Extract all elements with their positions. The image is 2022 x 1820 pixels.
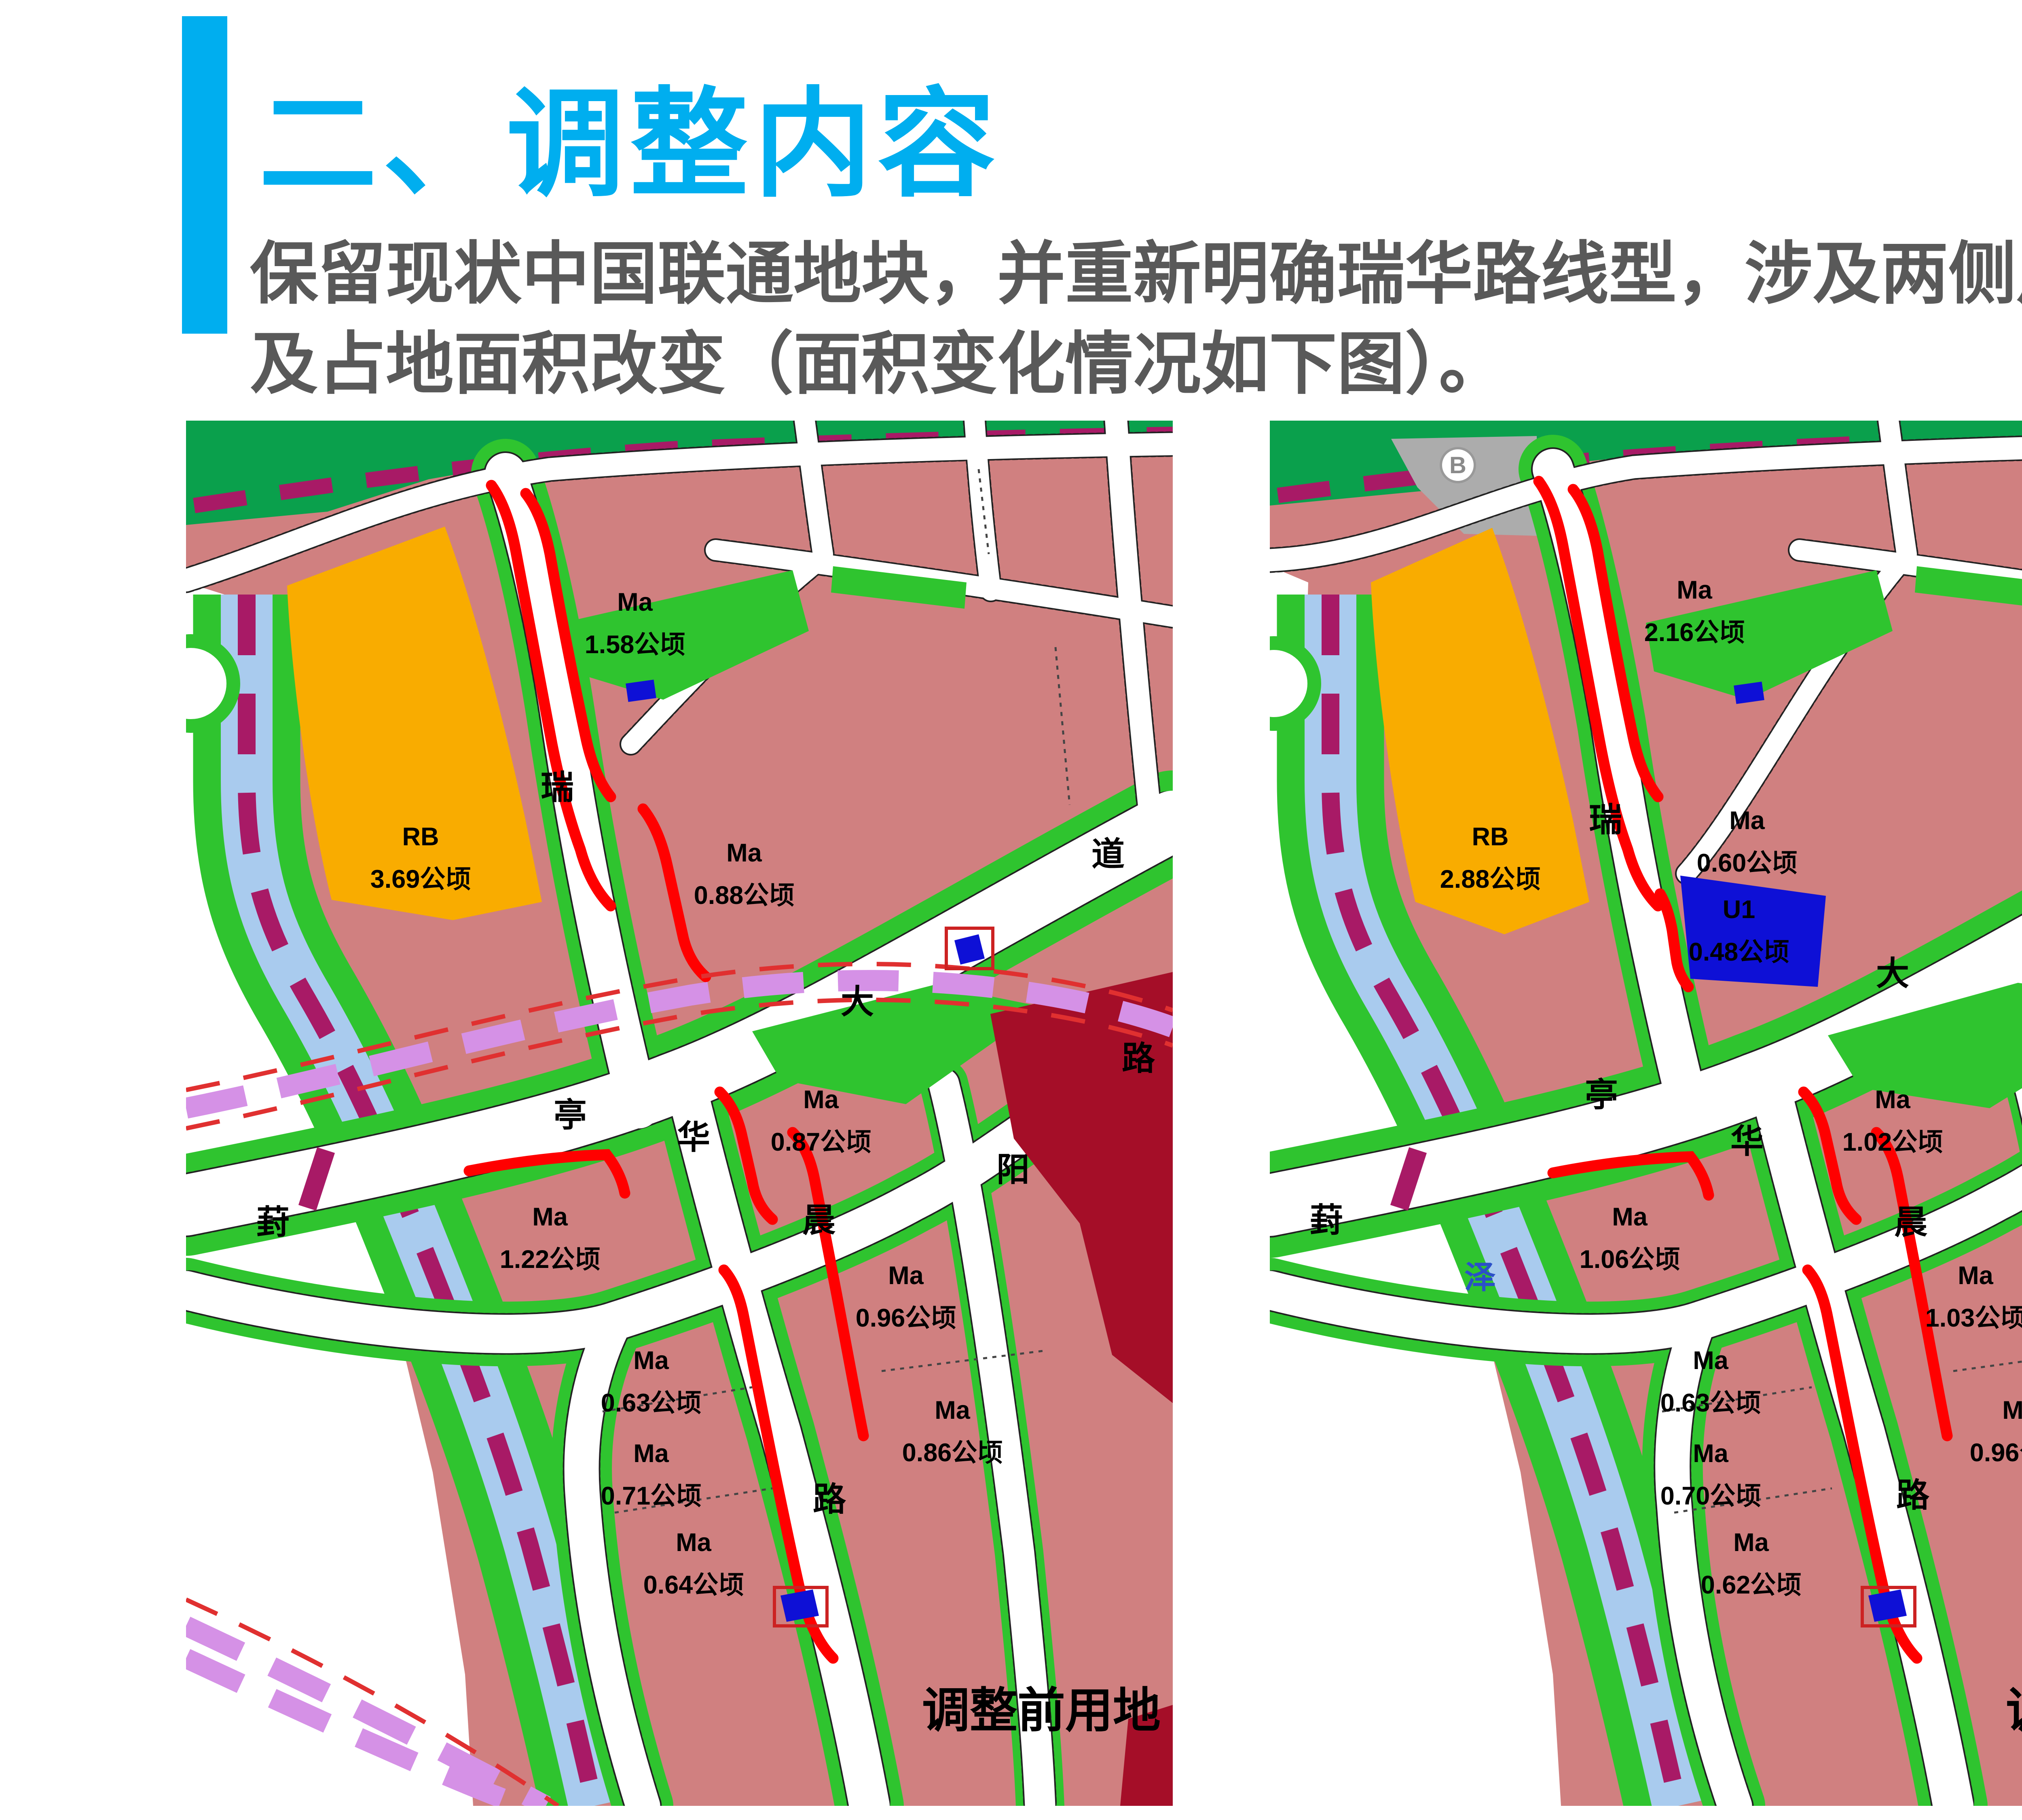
parcel-area-label: 0.63公顷 — [1660, 1389, 1761, 1417]
parcel-area-label: 0.86公顷 — [902, 1439, 1003, 1467]
map-caption: 调整后用地 — [2006, 1684, 2022, 1737]
river-name-label: 泽 — [1464, 1259, 1496, 1295]
parcel-code-label: Ma — [1693, 1346, 1728, 1375]
parcel-area-label: 2.88公顷 — [1440, 865, 1541, 893]
parcel-code-label: Ma — [803, 1086, 839, 1114]
road-name-label: 道 — [1091, 836, 1125, 873]
parcel-area-label: 1.02公顷 — [1842, 1128, 1943, 1156]
road-name-label: 华 — [677, 1119, 710, 1156]
parcel-code-label: U1 — [1723, 895, 1756, 924]
body-line-1: 保留现状中国联通地块，并重新明确瑞华路线型，涉及两侧用地形态 — [250, 229, 2022, 319]
parcel-code-label: Ma — [1612, 1203, 1648, 1231]
parcel-area-label: 1.03公顷 — [1925, 1304, 2022, 1332]
parcel-area-label: 0.64公顷 — [643, 1571, 744, 1599]
parcel-area-label: 0.87公顷 — [771, 1128, 871, 1156]
road-name-label: 瑞 — [1589, 802, 1622, 838]
road-name-label: 亭 — [1585, 1077, 1618, 1113]
parcel-code-label: Ma — [633, 1439, 669, 1468]
map-before-panel: Ma1.58公顷RB3.69公顷Ma0.88公顷Ma0.87公顷Ma1.22公顷… — [186, 421, 1173, 1806]
page-title: 二、调整内容 — [259, 49, 1001, 220]
parcel-code-label: Ma — [617, 588, 653, 616]
parcel-area-label: 0.88公顷 — [694, 881, 795, 910]
road-name-label: 华 — [1730, 1123, 1764, 1160]
map-caption: 调整前用地 — [922, 1684, 1161, 1737]
parcel-area-label: 0.71公顷 — [601, 1482, 702, 1510]
parcel-area-label: 0.62公顷 — [1701, 1571, 1802, 1599]
parcel-area-label: 0.96公顷 — [856, 1304, 956, 1332]
parcel-code-label: Ma — [2002, 1396, 2022, 1424]
map-after-panel: Ma2.16公顷RB2.88公顷Ma0.60公顷U10.48公顷Ma1.02公顷… — [1270, 421, 2022, 1806]
body-line-2: 及占地面积改变（面积变化情况如下图）。 — [250, 319, 2022, 409]
road-name-label: 路 — [813, 1481, 846, 1518]
road-name-label: 亭 — [554, 1097, 587, 1134]
road-name-label: 大 — [1876, 955, 1909, 992]
parcel-area-label: 0.60公顷 — [1697, 849, 1798, 877]
parcel-code-label: Ma — [1875, 1086, 1910, 1114]
road-name-label: 葑 — [256, 1204, 290, 1241]
road-name-label: 阳 — [996, 1151, 1030, 1188]
parcel-code-label: Ma — [935, 1396, 970, 1424]
accent-bar — [182, 16, 227, 334]
parcel-code-label: RB — [402, 823, 439, 851]
road-name-label: 晨 — [1894, 1204, 1927, 1241]
road-name-label: 路 — [1896, 1477, 1930, 1514]
parcel-code-label: Ma — [888, 1261, 924, 1290]
parcel-area-label: 1.58公顷 — [585, 631, 685, 659]
parcel-code-label: Ma — [1677, 576, 1712, 604]
road-name-label: 大 — [841, 984, 874, 1020]
parcel-area-label: 1.22公顷 — [500, 1245, 601, 1274]
parcel-area-label: 3.69公顷 — [370, 865, 471, 893]
parcel-code-label: Ma — [1729, 806, 1765, 835]
road-name-label: 瑞 — [541, 769, 574, 806]
parcel-code-label: RB — [1472, 823, 1509, 851]
slide: { "slide": { "title": "二、调整内容", "body_li… — [0, 0, 2022, 1820]
parcel-area-label: 2.16公顷 — [1644, 618, 1745, 647]
parcel-code-label: Ma — [1693, 1439, 1728, 1468]
road-name-label: 晨 — [802, 1202, 835, 1239]
parcel-area-label: 0.48公顷 — [1689, 938, 1789, 966]
parcel-code-label: Ma — [1733, 1528, 1769, 1557]
parcel-area-label: 0.70公顷 — [1660, 1482, 1761, 1510]
parcel-code-label: Ma — [633, 1346, 669, 1375]
parcel-code-label: Ma — [726, 839, 762, 867]
road-name-label: 路 — [1122, 1040, 1155, 1077]
parcel-code-label: Ma — [676, 1528, 711, 1557]
parcel-code-label: Ma — [1958, 1261, 1993, 1290]
parcel-code-label: Ma — [532, 1203, 568, 1231]
parcel-area-label: 1.06公顷 — [1580, 1245, 1680, 1274]
zone-b-label: B — [1449, 452, 1466, 478]
road-name-label: 葑 — [1310, 1202, 1343, 1239]
map-before-figure: Ma1.58公顷RB3.69公顷Ma0.88公顷Ma0.87公顷Ma1.22公顷… — [186, 421, 1173, 1806]
parcel-area-label: 0.96公顷 — [1970, 1439, 2022, 1467]
body-paragraph: 保留现状中国联通地块，并重新明确瑞华路线型，涉及两侧用地形态 及占地面积改变（面… — [250, 229, 2022, 410]
map-after-figure: Ma2.16公顷RB2.88公顷Ma0.60公顷U10.48公顷Ma1.02公顷… — [1270, 421, 2022, 1806]
parcel-area-label: 0.63公顷 — [601, 1389, 702, 1417]
